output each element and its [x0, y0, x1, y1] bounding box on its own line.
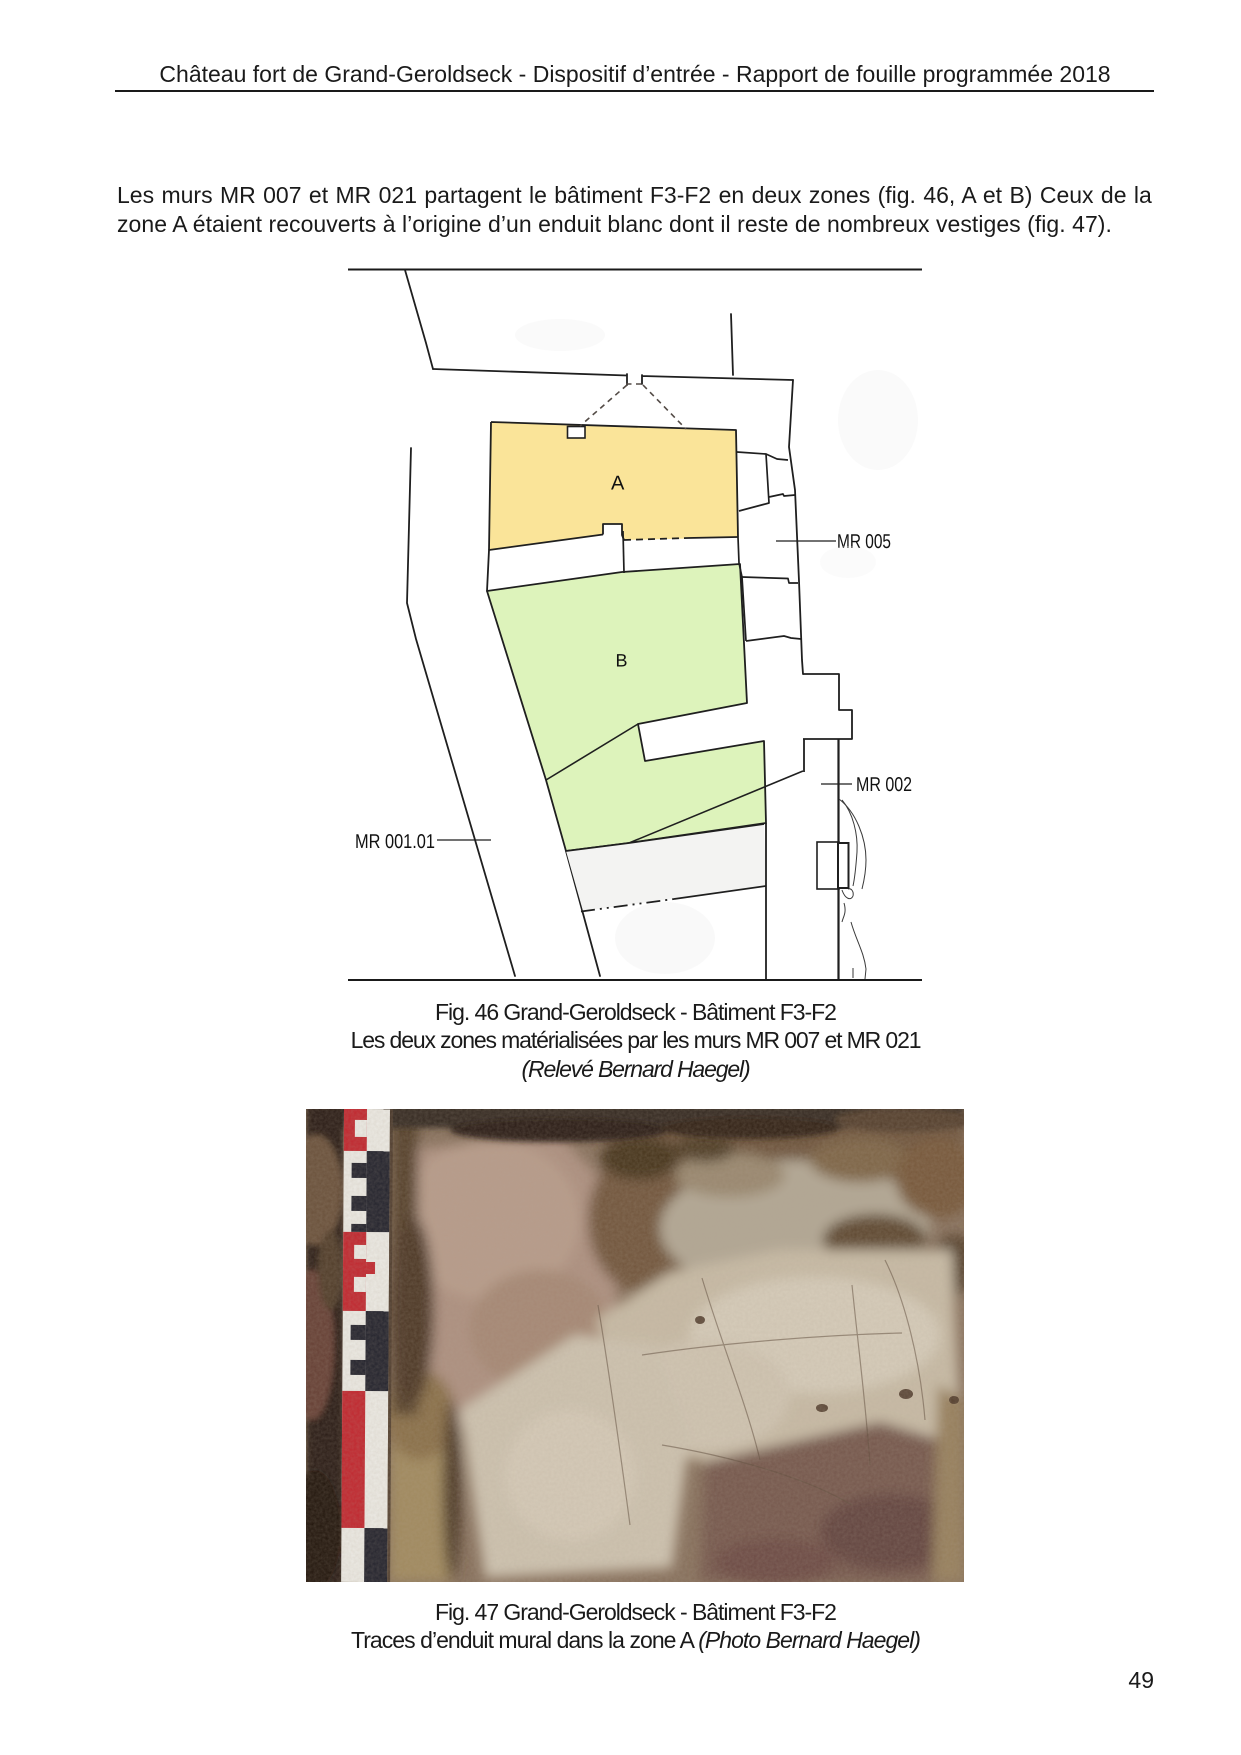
- svg-text:MR 001.01: MR 001.01: [355, 831, 435, 853]
- svg-text:MR 002: MR 002: [856, 774, 912, 796]
- svg-text:B: B: [616, 651, 628, 671]
- svg-text:A: A: [611, 473, 625, 495]
